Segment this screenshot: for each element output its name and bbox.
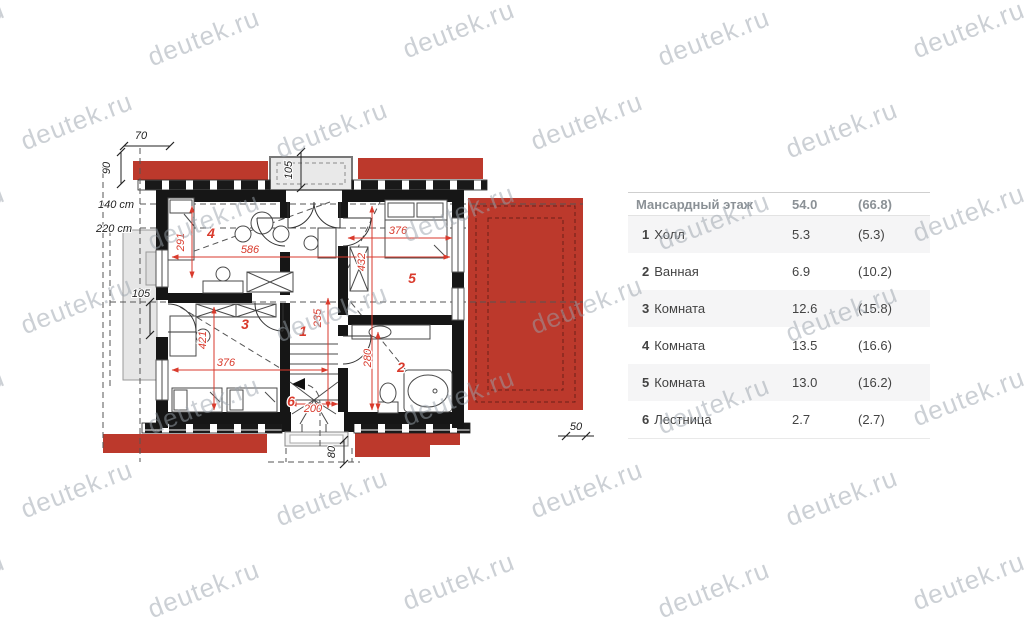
table-row: 1Холл 5.3 (5.3) [628,216,930,253]
floor-plan-page: 291 586 376 432 235 421 376 280 200 1 2 … [0,0,1024,631]
dim-291: 291 [175,233,187,252]
dim-105-dormer: 105 [283,160,295,179]
room-name: Холл [654,227,685,242]
room-area: 6.9 [792,264,858,279]
table-row: 6Лестница 2.7 (2.7) [628,401,930,438]
dim-280: 280 [362,348,374,368]
table-header-total: (66.8) [858,197,930,212]
dim-421: 421 [197,331,209,349]
room-area: 13.0 [792,375,858,390]
room-name: Комната [654,375,705,390]
table-title: Мансардный этаж [628,197,792,212]
room-number: 4 [642,338,649,353]
stairs [290,344,338,446]
table-header-area: 54.0 [792,197,858,212]
dim-376-bottom: 376 [217,357,236,369]
room-6-label: 6 [287,393,295,409]
room-number: 3 [642,301,649,316]
room-number: 6 [642,412,649,427]
room-3-label: 3 [241,316,249,332]
watermark-text: deutek.ru [781,94,902,165]
table-row: 5Комната 13.0 (16.2) [628,364,930,401]
window-sill [146,252,156,285]
dim-235: 235 [312,308,324,328]
room-area-total: (16.2) [858,375,930,390]
dim-50: 50 [570,421,583,433]
room-area: 12.6 [792,301,858,316]
roof-top-left [133,161,268,180]
watermark-text: deutek.ru [781,462,902,533]
room-number: 1 [642,227,649,242]
room-area-total: (16.6) [858,338,930,353]
room-1-label: 1 [299,323,307,339]
roof-top-right [358,158,483,179]
room-number: 5 [642,375,649,390]
room-area-total: (15.8) [858,301,930,316]
dim-70: 70 [135,130,148,142]
room-name: Ванная [654,264,699,279]
floor-plan-drawing: 291 586 376 432 235 421 376 280 200 1 2 … [0,0,640,631]
room-area-total: (5.3) [858,227,930,242]
room-area-table: Мансардный этаж 54.0 (66.8) 1Холл 5.3 (5… [628,192,930,439]
roof-bottom-left [103,434,267,453]
furniture-room5 [304,200,447,291]
room-name: Комната [654,301,705,316]
roof-bottom-right [355,433,430,457]
dim-140cm: 140 cm [98,199,134,211]
table-row: 3Комната 12.6 (15.8) [628,290,930,327]
table-row: 4Комната 13.5 (16.6) [628,327,930,364]
room-area: 5.3 [792,227,858,242]
room-area: 13.5 [792,338,858,353]
dim-105-left: 105 [132,288,151,300]
dim-586: 586 [241,244,260,256]
roof-right-large [468,198,583,410]
room-area: 2.7 [792,412,858,427]
watermark-text: deutek.ru [653,2,774,73]
room-area-total: (2.7) [858,412,930,427]
dim-80: 80 [326,445,338,458]
dim-220cm: 220 cm [95,223,132,235]
roof-bottom-right-step [430,433,460,445]
dim-376-top: 376 [389,225,408,237]
dim-432: 432 [356,253,368,271]
dim-90: 90 [101,161,113,174]
room-2-label: 2 [396,359,405,375]
table-row: 2Ванная 6.9 (10.2) [628,253,930,290]
room-4-label: 4 [206,225,215,241]
watermark-text: deutek.ru [908,0,1024,65]
room-name: Комната [654,338,705,353]
dim-200: 200 [303,403,323,415]
room-5-label: 5 [408,270,416,286]
watermark-text: deutek.ru [908,546,1024,617]
room-area-total: (10.2) [858,264,930,279]
stair-threshold [285,432,348,446]
room-name: Лестница [654,412,711,427]
room-number: 2 [642,264,649,279]
table-header-row: Мансардный этаж 54.0 (66.8) [628,193,930,216]
watermark-text: deutek.ru [653,554,774,625]
